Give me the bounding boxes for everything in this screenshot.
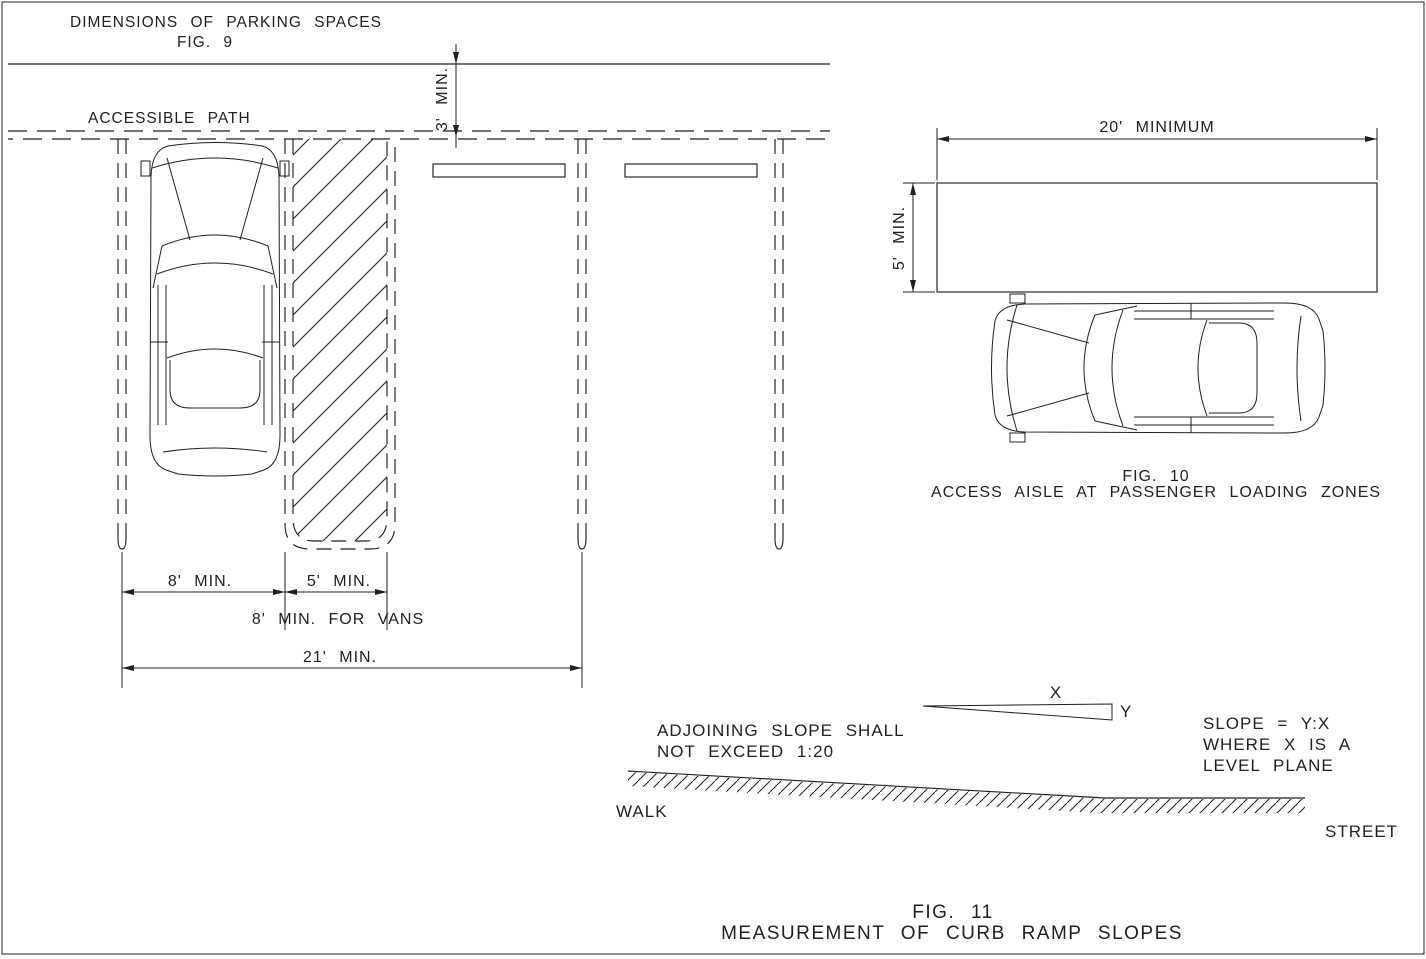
van-note-label: 8' MIN. FOR VANS: [252, 611, 424, 628]
dimension-5ft-width: 5' MIN.: [891, 183, 935, 292]
wheel-stop: [433, 164, 565, 177]
fig11-curb-ramp-slopes: X Y ADJOINING SLOPE SHALL NOT EXCEED 1:2…: [616, 683, 1398, 944]
car-mirror: [141, 161, 150, 176]
fig11-label: FIG. 11: [912, 902, 993, 923]
stall-divider-middle: [578, 139, 586, 549]
stall-divider-right: [775, 139, 783, 549]
fig9-parking-spaces: DIMENSIONS OF PARKING SPACES FIG. 9 ACCE…: [8, 14, 830, 688]
access-aisle-hatched: [285, 139, 395, 549]
fig10-label: FIG. 10: [1122, 468, 1189, 485]
loading-car-top-view: [992, 294, 1326, 442]
ground-hatch: [628, 772, 1305, 813]
adjoining-note-line2: NOT EXCEED 1:20: [657, 742, 834, 761]
fig11-caption: MEASUREMENT OF CURB RAMP SLOPES: [721, 923, 1183, 944]
cad-drawing: DIMENSIONS OF PARKING SPACES FIG. 9 ACCE…: [0, 0, 1426, 959]
parked-car-top-view: [141, 143, 289, 477]
wheel-stop: [625, 164, 757, 177]
dim-5ft-label: 5' MIN.: [307, 573, 371, 590]
dimension-8ft-5ft: 8' MIN. 5' MIN.: [122, 573, 387, 595]
dim-21ft-label: 21' MIN.: [303, 649, 377, 666]
slope-x-label: X: [1050, 683, 1062, 702]
dim-3ft-label: 3' MIN.: [434, 67, 451, 131]
slope-triangle: [923, 704, 1112, 720]
dim-3ft-arrow-top: [453, 52, 459, 64]
street-label: STREET: [1325, 822, 1398, 841]
stall-divider-left: [118, 139, 126, 549]
slope-formula-line3: LEVEL PLANE: [1203, 756, 1334, 775]
loading-aisle-stippled-area: [937, 183, 1377, 292]
dim-5ft-width-label: 5' MIN.: [891, 206, 908, 270]
dim-20ft-label: 20' MINIMUM: [1099, 119, 1214, 136]
fig9-label: FIG. 9: [177, 34, 233, 51]
fig10-loading-zone: 20' MINIMUM 5' MIN.: [891, 119, 1381, 501]
fig9-title: DIMENSIONS OF PARKING SPACES: [70, 14, 382, 31]
slope-formula-line2: WHERE X IS A: [1203, 735, 1351, 754]
slope-formula-line1: SLOPE = Y:X: [1203, 714, 1330, 733]
walk-label: WALK: [616, 802, 668, 821]
car-mirror: [1010, 294, 1025, 303]
fig10-caption: ACCESS AISLE AT PASSENGER LOADING ZONES: [931, 484, 1381, 501]
drawing-sheet: DIMENSIONS OF PARKING SPACES FIG. 9 ACCE…: [0, 0, 1426, 959]
access-aisle-hatch-fill: [293, 139, 387, 541]
dimension-21ft: 21' MIN.: [122, 649, 582, 671]
dimension-3ft-clearance: 3' MIN.: [434, 44, 459, 148]
dimension-20ft: 20' MINIMUM: [937, 119, 1377, 180]
accessible-path-label: ACCESSIBLE PATH: [88, 110, 251, 127]
adjoining-note-line1: ADJOINING SLOPE SHALL: [657, 721, 905, 740]
slope-y-label: Y: [1120, 702, 1132, 721]
dim-8ft-label: 8' MIN.: [168, 573, 232, 590]
car-mirror: [1010, 433, 1025, 442]
